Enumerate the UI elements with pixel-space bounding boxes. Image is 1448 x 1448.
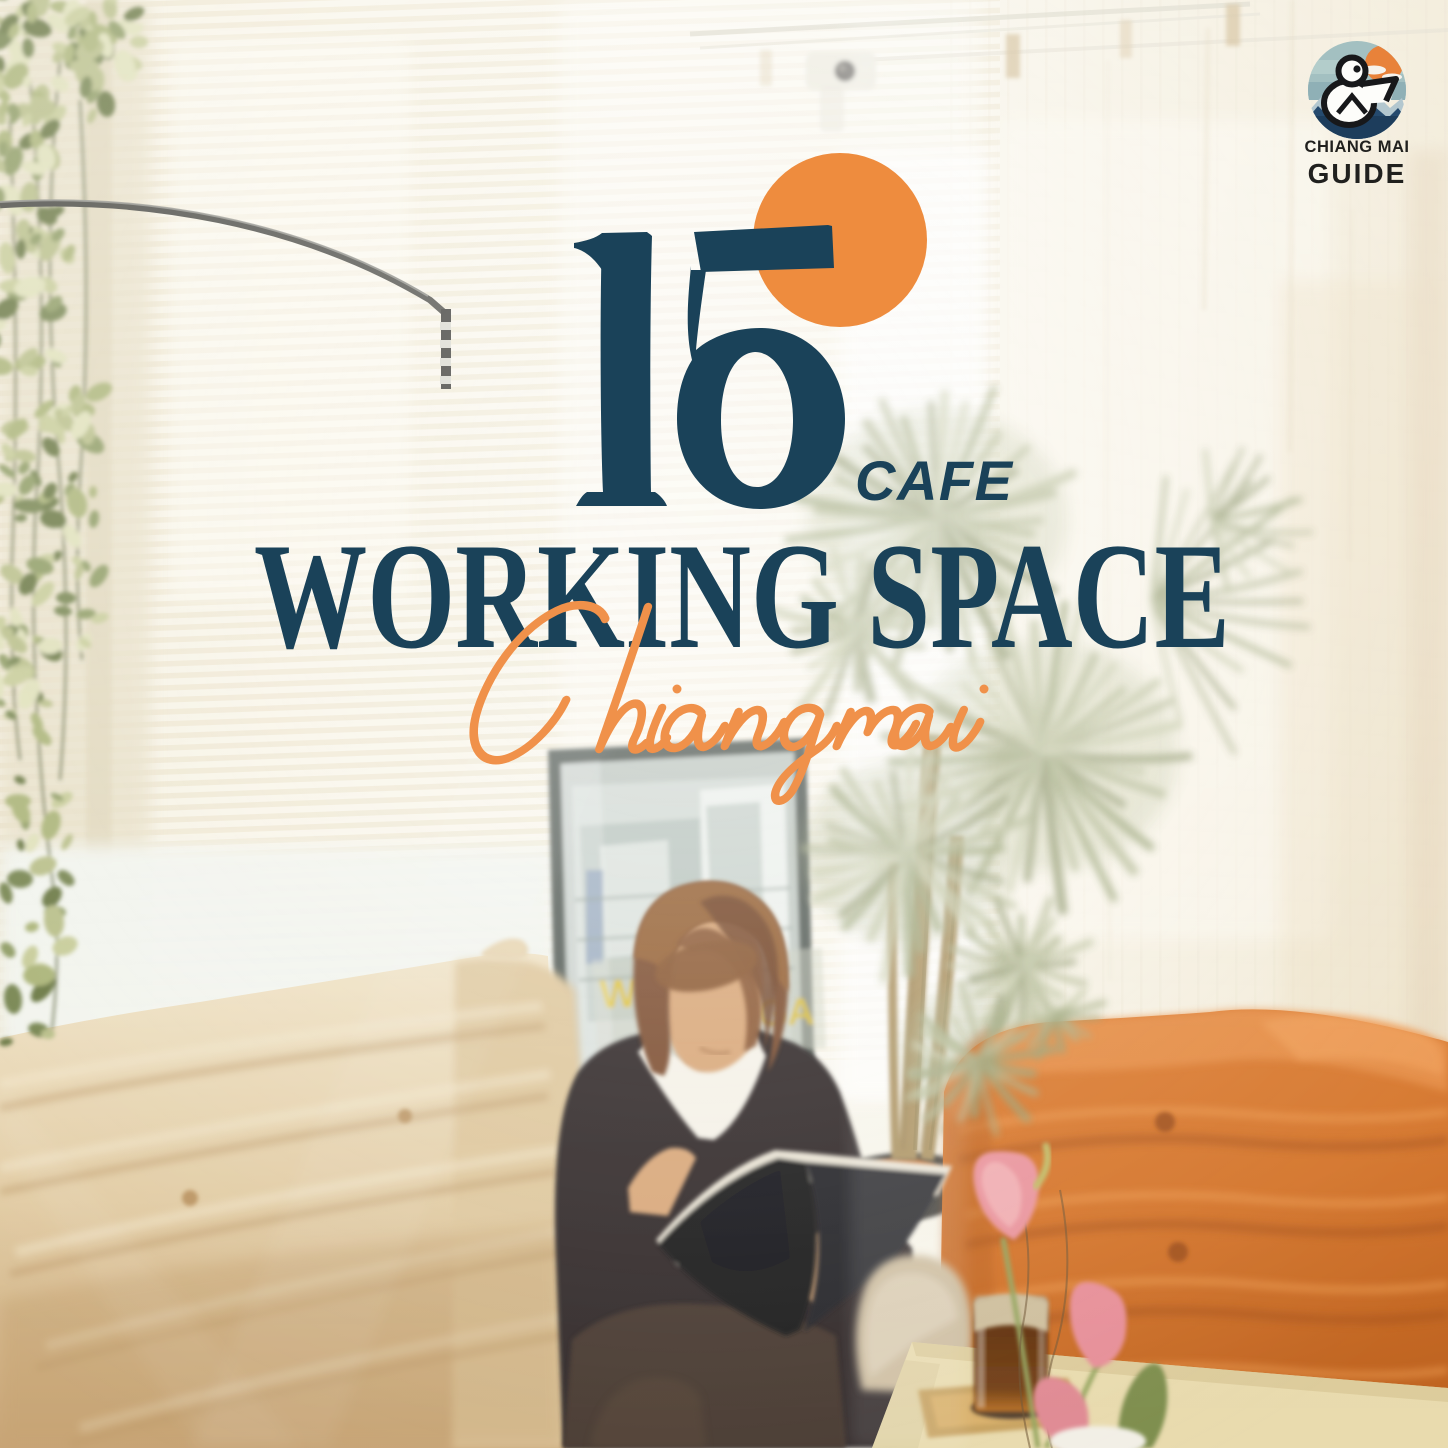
svg-text:GUIDE: GUIDE xyxy=(1308,158,1407,189)
svg-text:CHIANG MAI: CHIANG MAI xyxy=(1305,138,1410,156)
svg-text:WORKING SPACE: WORKING SPACE xyxy=(254,512,1230,680)
svg-text:CAFE: CAFE xyxy=(855,449,1014,512)
